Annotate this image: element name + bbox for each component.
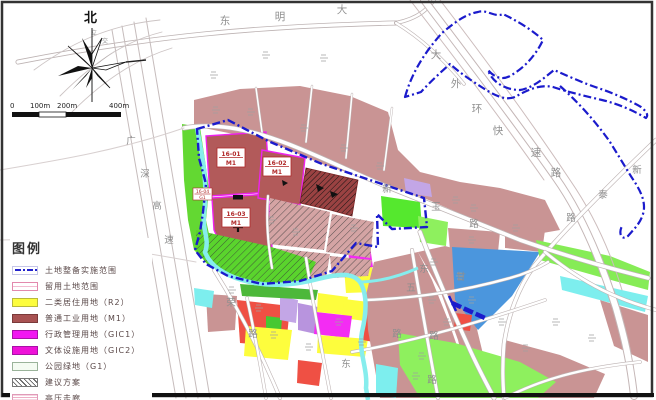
proposal-swatch: [12, 378, 38, 387]
road-label-char: 路: [392, 328, 402, 340]
road-label-char: 速: [531, 147, 542, 159]
parcel-label-16-02: 16-02 M1: [263, 157, 291, 176]
road-label-char: 路: [551, 166, 562, 179]
legend-item-residential-r2: 二类居住用地（R2）: [12, 297, 152, 307]
legend-item-hv-corridor: 高压走廊: [12, 393, 152, 400]
road-label-char: 东: [419, 263, 429, 275]
svg-text:G1: G1: [199, 195, 206, 201]
parcel-label-16-04: 16-04 G1: [193, 188, 212, 201]
planning-map-page: 东 明 大 立 交 大 外 环 快 速 路 新 泰 路 广 深 高 速 新 玉 …: [0, 0, 656, 400]
svg-text:16-01: 16-01: [221, 151, 240, 158]
road-label-char: 东: [341, 358, 351, 370]
residential-swatch: [12, 298, 38, 307]
hv-corridor-swatch: [12, 394, 38, 400]
legend-item-culture-gic2: 文体设施用地（GIC2）: [12, 345, 152, 355]
scale-tick: 200m: [57, 102, 77, 110]
legend-item-reserved-land: 留用土地范围: [12, 281, 152, 291]
road-label-char: 高: [152, 200, 162, 212]
parcel-label-16-01: 16-01 M1: [217, 148, 245, 167]
svg-text:16-03: 16-03: [226, 211, 245, 218]
north-label: 北: [84, 11, 97, 26]
svg-text:M1: M1: [231, 220, 241, 227]
road-label-char: 新: [382, 183, 392, 195]
road-label-char: 快: [493, 125, 504, 137]
road-label-char: 深: [140, 169, 150, 180]
road-label-char: 大: [337, 3, 348, 16]
boundary-swatch: [12, 266, 38, 275]
road-label-char: 路: [469, 218, 479, 230]
road-label-char: 明: [275, 11, 286, 23]
svg-text:M1: M1: [272, 169, 282, 176]
road-label-char: 新: [632, 164, 642, 176]
road-label-char: 泰: [598, 189, 608, 201]
road-label-char: 环: [472, 103, 483, 115]
road-label-char: 五: [406, 283, 416, 294]
park-swatch: [12, 362, 38, 371]
road-label-char: 路: [427, 374, 437, 386]
road-label-char: 大: [431, 48, 442, 61]
road-label-char: 甘: [456, 271, 466, 283]
road-label-char: 路: [429, 330, 439, 342]
scale-tick: 400m: [109, 102, 129, 110]
reserved-land-swatch: [12, 282, 38, 291]
legend: 图例 土地整备实施范围 留用土地范围 二类居住用地（R2） 普通工业用地（M1）…: [10, 238, 152, 400]
road-label-char: 荣: [226, 297, 236, 309]
road-label-char: 路: [566, 212, 576, 224]
road-label-char: 广: [126, 135, 136, 147]
legend-item-industrial-m1: 普通工业用地（M1）: [12, 313, 152, 323]
industrial-swatch: [12, 314, 38, 323]
culture-swatch: [12, 346, 38, 355]
svg-text:16-02: 16-02: [267, 160, 286, 167]
scale-tick: 100m: [30, 102, 50, 110]
scale-tick: 0: [10, 102, 14, 110]
svg-text:16-04: 16-04: [196, 189, 209, 195]
legend-item-park-g1: 公园绿地（G1）: [12, 361, 152, 371]
road-label-char: 玉: [431, 202, 441, 213]
road-label-char: 东: [220, 14, 231, 27]
road-label-char: 外: [451, 78, 462, 90]
road-label-char: 速: [164, 235, 174, 246]
legend-title: 图例: [12, 238, 152, 257]
road-label-char: 路: [248, 328, 258, 340]
parcel-label-16-03: 16-03 M1: [222, 208, 250, 227]
road-label-char: 交: [102, 37, 108, 45]
svg-text:M1: M1: [226, 160, 236, 167]
legend-item-admin-gic1: 行政管理用地（GIC1）: [12, 329, 152, 339]
admin-swatch: [12, 330, 38, 339]
legend-item-proposal: 建议方案: [12, 377, 152, 387]
legend-item-implementation-scope: 土地整备实施范围: [12, 265, 152, 275]
